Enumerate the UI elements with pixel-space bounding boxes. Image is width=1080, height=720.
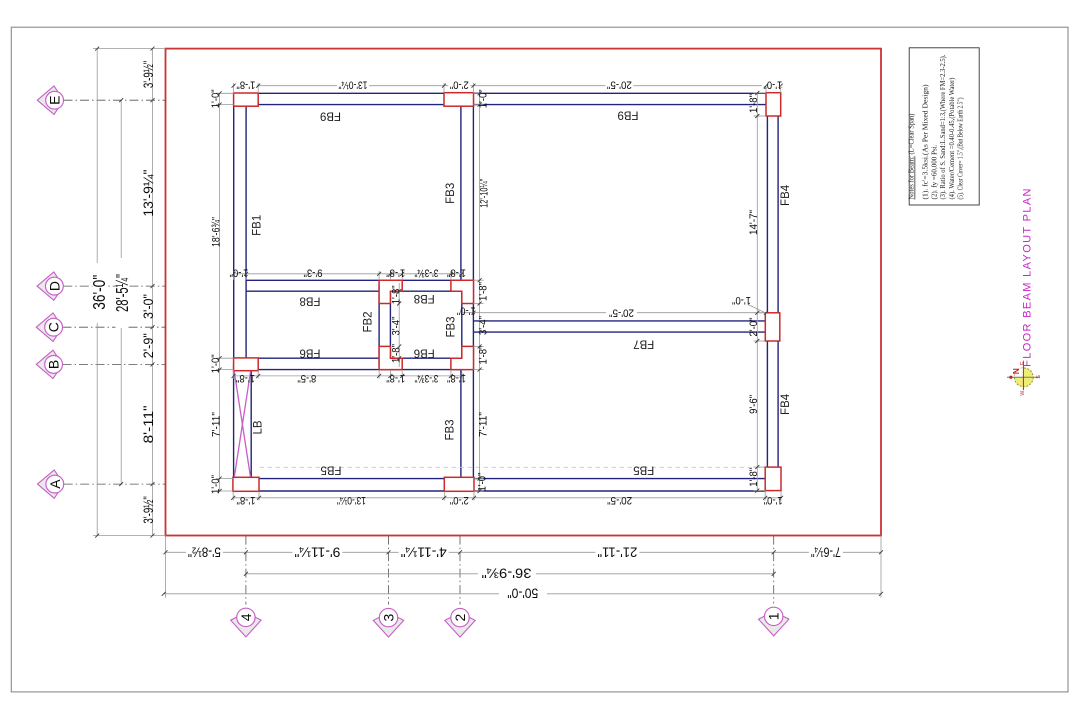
svg-text:1'-8": 1'-8" (236, 494, 255, 506)
svg-text:36'-9¾": 36'-9¾" (481, 565, 531, 581)
svg-text:28'-5¼": 28'-5¼" (112, 274, 132, 312)
svg-text:5'-8½": 5'-8½" (188, 545, 221, 560)
svg-text:FB8: FB8 (299, 295, 320, 307)
svg-text:13'-0¼": 13'-0¼" (338, 78, 367, 90)
svg-text:FB5: FB5 (320, 463, 341, 475)
svg-text:3'-9½": 3'-9½" (141, 61, 156, 89)
svg-text:D: D (46, 281, 62, 291)
svg-text:2'-0": 2'-0" (748, 317, 760, 336)
svg-text:13'-0¼": 13'-0¼" (337, 494, 366, 506)
svg-text:(1). fc'=3.5ksi.(As Per Mixed: (1). fc'=3.5ksi.(As Per Mixed Design) (921, 84, 930, 200)
svg-text:(3). Ratio of S. Sand:L.Sand=1: (3). Ratio of S. Sand:L.Sand=1:3,(Where … (938, 54, 947, 199)
svg-text:N: N (1011, 368, 1021, 374)
svg-text:7'-11": 7'-11" (478, 412, 490, 437)
svg-text:1'-8": 1'-8" (386, 266, 405, 278)
svg-text:18'-6¾": 18'-6¾" (210, 217, 222, 247)
svg-text:4'-11¼": 4'-11¼" (400, 545, 446, 560)
svg-text:7'-11": 7'-11" (210, 412, 222, 437)
svg-text:(5). Clear Cover= 1.5",(But Be: (5). Clear Cover= 1.5",(But Below Earth … (956, 97, 965, 199)
svg-text:9'-6": 9'-6" (748, 395, 760, 414)
svg-text:1'-8": 1'-8" (748, 468, 760, 487)
svg-text:FB4: FB4 (780, 393, 792, 415)
svg-text:14'-7": 14'-7" (748, 210, 760, 235)
svg-text:E: E (47, 96, 63, 105)
svg-text:20'-5": 20'-5" (607, 78, 632, 90)
svg-text:FB4: FB4 (780, 184, 792, 206)
svg-text:B: B (46, 360, 62, 369)
svg-text:FB6: FB6 (299, 346, 320, 358)
svg-text:1'-0": 1'-0" (732, 294, 751, 306)
svg-text:FB2: FB2 (363, 311, 375, 332)
svg-text:1'-8": 1'-8" (236, 372, 255, 384)
svg-text:FB3: FB3 (445, 183, 457, 204)
svg-text:13'-9¼": 13'-9¼" (141, 169, 156, 216)
svg-text:FB3: FB3 (446, 316, 458, 337)
svg-text:1'-0": 1'-0" (763, 78, 782, 90)
svg-text:1'-8": 1'-8" (447, 372, 466, 384)
svg-text:A: A (47, 479, 63, 489)
svg-text:1'-8": 1'-8" (478, 282, 490, 301)
svg-text:E: E (1020, 361, 1026, 365)
svg-text:8'-5": 8'-5" (297, 372, 316, 384)
svg-text:FLOOR BEAM LAYOUT PLAN: FLOOR BEAM LAYOUT PLAN (1022, 187, 1034, 367)
svg-text:FB9: FB9 (617, 109, 638, 121)
svg-text:3'-4": 3'-4" (390, 316, 402, 335)
svg-text:FB1: FB1 (251, 215, 263, 236)
svg-text:21'-11": 21'-11" (597, 545, 637, 560)
svg-text:50'-0": 50'-0" (507, 585, 538, 601)
svg-text:FB8: FB8 (414, 292, 435, 304)
svg-text:3'-0": 3'-0" (141, 294, 156, 319)
svg-text:FB3: FB3 (444, 419, 456, 440)
svg-text:FB9: FB9 (320, 110, 341, 122)
svg-text:3'-4": 3'-4" (478, 316, 490, 335)
svg-text:3'-9½": 3'-9½" (141, 496, 156, 524)
svg-text:9'-11¼": 9'-11¼" (294, 545, 340, 560)
svg-text:20'-5": 20'-5" (607, 494, 632, 506)
svg-text:(2). fy =60,000 Psi.: (2). fy =60,000 Psi. (929, 144, 938, 199)
svg-text:1'-8": 1'-8" (478, 345, 490, 364)
svg-text:12'-10¼": 12'-10¼" (478, 179, 490, 208)
svg-text:20'-5": 20'-5" (609, 307, 634, 319)
svg-text:1'-0": 1'-0" (229, 266, 248, 278)
svg-text:LB: LB (253, 420, 265, 434)
svg-text:1'-8": 1'-8" (748, 94, 760, 113)
svg-text:2'-0": 2'-0" (450, 494, 469, 506)
svg-text:W: W (1020, 391, 1026, 396)
svg-text:3'-3¾": 3'-3¾" (414, 266, 438, 278)
svg-text:FB7: FB7 (633, 338, 654, 350)
svg-text:7'-6¼": 7'-6¼" (811, 545, 841, 560)
svg-text:1'-0": 1'-0" (477, 472, 489, 491)
svg-text:2'-0": 2'-0" (450, 78, 469, 90)
svg-text:9'-3": 9'-3" (303, 266, 322, 278)
svg-text:FB6: FB6 (414, 346, 435, 358)
svg-text:FB5: FB5 (633, 463, 654, 475)
svg-text:2'-9": 2'-9" (141, 333, 156, 358)
svg-text:1'-0": 1'-0" (764, 494, 783, 506)
svg-text:C: C (46, 322, 62, 332)
svg-text:1'-8": 1'-8" (236, 78, 255, 90)
svg-text:36'-0": 36'-0" (89, 275, 109, 310)
svg-text:1'-8": 1'-8" (390, 344, 402, 363)
svg-text:8'-11": 8'-11" (141, 405, 156, 443)
svg-text:3: 3 (381, 613, 397, 621)
svg-text:1'-0": 1'-0" (457, 305, 476, 317)
svg-text:1: 1 (766, 612, 782, 620)
svg-text:2: 2 (452, 613, 468, 621)
svg-text:3'-3¾": 3'-3¾" (414, 372, 438, 384)
svg-text:4: 4 (238, 613, 254, 621)
svg-text:Notes for Beam: (L=Clear Span): Notes for Beam: (L=Clear Span) (907, 113, 916, 199)
svg-text:1'-0": 1'-0" (478, 89, 490, 108)
svg-text:1'-8": 1'-8" (390, 285, 402, 304)
svg-text:(4). Water/Cement =0.40-0.45,(: (4). Water/Cement =0.40-0.45,(Potable Wa… (947, 77, 956, 199)
svg-text:S: S (1036, 375, 1042, 379)
